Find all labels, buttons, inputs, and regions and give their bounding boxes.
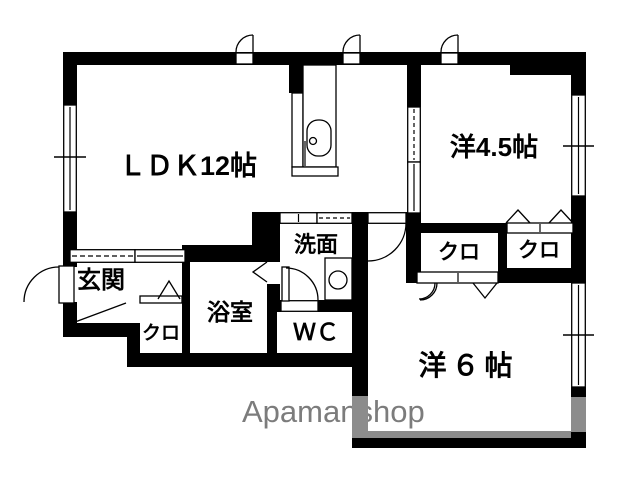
room6-west-wall: [352, 355, 368, 448]
room-label-ldk: ＬＤＫ12帖: [88, 150, 288, 182]
room-label-western-6: 洋６帖: [378, 350, 558, 382]
floor-plan: Apamanshop ＬＤＫ12帖 洋4.5帖 洋６帖 玄関 クロ 浴室 洗面 …: [0, 0, 640, 480]
room-label-bathroom: 浴室: [192, 298, 268, 326]
room-label-closet-west6: クロ: [422, 238, 496, 266]
room-label-western-4-5: 洋4.5帖: [414, 132, 574, 162]
room-label-closet-west45: クロ: [505, 237, 573, 264]
room-label-entrance: 玄関: [64, 266, 138, 296]
room-label-closet-entrance: クロ: [138, 320, 184, 346]
room-label-toilet: ＷＣ: [282, 318, 350, 346]
room-label-washroom: 洗面: [282, 232, 350, 258]
